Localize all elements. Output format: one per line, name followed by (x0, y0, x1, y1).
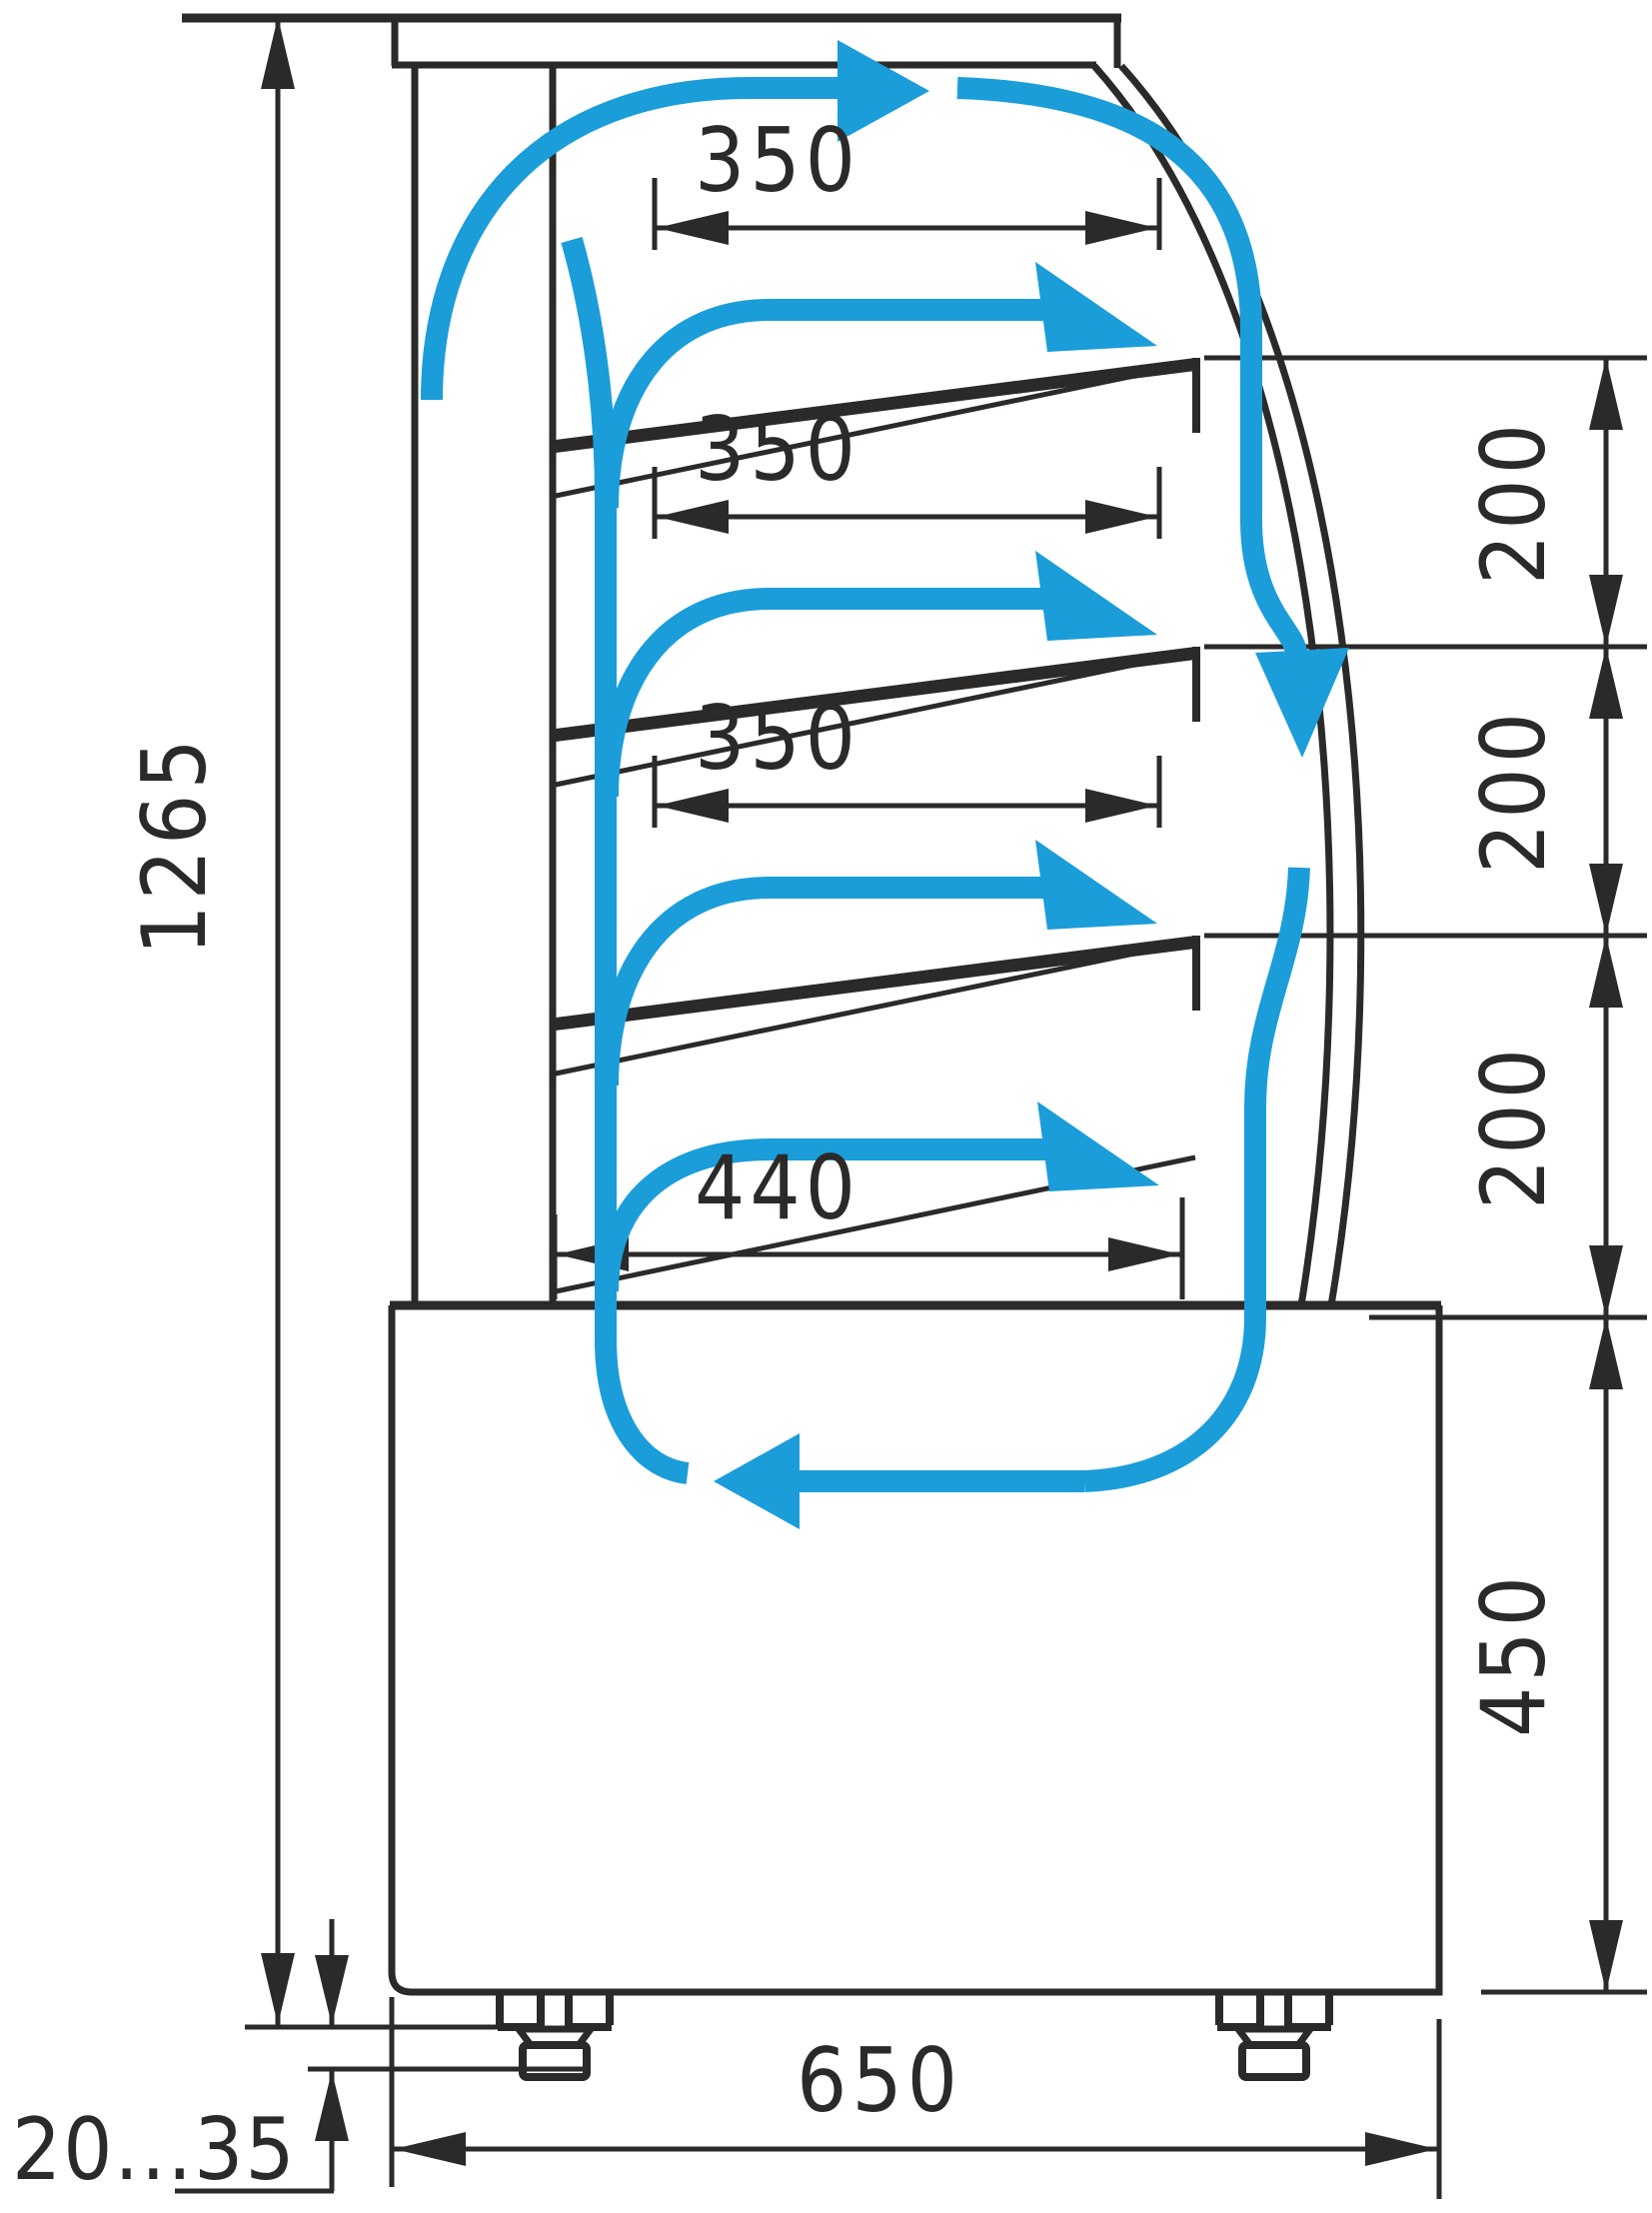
shelves (556, 358, 1196, 1074)
dimension-labels: 1265 350 350 350 440 200 200 200 450 650… (12, 109, 1565, 2200)
label-shelf-gap-1: 200 (1462, 419, 1565, 585)
label-leg-adjust-range: 20...35 (12, 2100, 297, 2200)
left-foot (498, 1992, 612, 2077)
airflow-shelf-2-arrow-icon (1035, 551, 1157, 641)
dim-bottom-shelf-depth (555, 1197, 1182, 1299)
display-case-diagram: 1265 350 350 350 440 200 200 200 450 650… (0, 0, 1652, 2213)
dimensions (175, 17, 1647, 2199)
label-total-height: 1265 (123, 734, 226, 955)
label-shelf-gap-3: 200 (1462, 1044, 1565, 1209)
label-base-height: 450 (1462, 1571, 1565, 1737)
label-base-depth: 650 (797, 2029, 962, 2132)
label-shelf-2-depth: 350 (695, 398, 860, 501)
label-shelf-1-depth: 350 (695, 109, 860, 212)
airflow-down-arrow-icon (1255, 648, 1349, 758)
airflow-floor-arrow-icon (1037, 1102, 1159, 1191)
airflow-shelf-1-arrow-icon (1035, 262, 1157, 352)
label-shelf-gap-2: 200 (1462, 708, 1565, 874)
right-foot (1217, 1992, 1331, 2077)
technical-drawing-page: 1265 350 350 350 440 200 200 200 450 650… (0, 0, 1652, 2213)
airflow-return-arrow-icon (714, 1433, 800, 1529)
airflow-shelf-3-arrow-icon (1035, 840, 1157, 930)
label-bottom-shelf-depth: 440 (695, 1136, 860, 1239)
label-shelf-3-depth: 350 (695, 687, 860, 790)
base-body (392, 1305, 1439, 1992)
dim-total-height (245, 17, 508, 2027)
